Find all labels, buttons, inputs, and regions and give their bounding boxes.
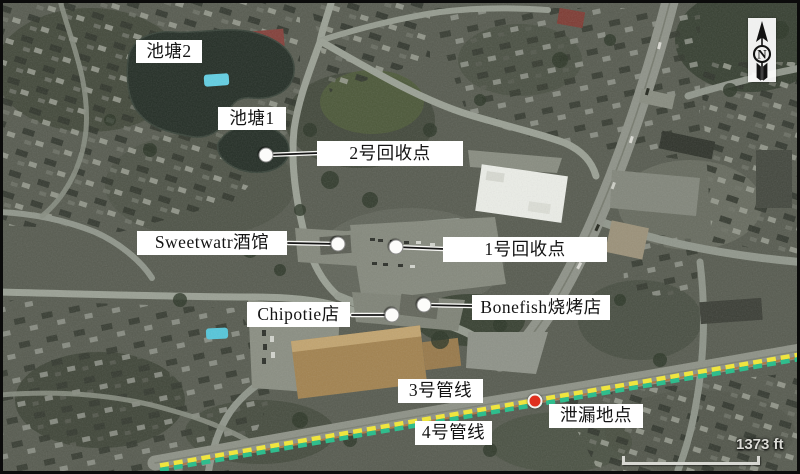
label-pond-2: 池塘2 (136, 40, 202, 63)
label-bonefish-grill: Bonefish烧烤店 (472, 295, 610, 320)
recovery-point-1-marker (389, 240, 404, 255)
leak-site-marker (528, 394, 543, 409)
label-chipotle-store: Chipotie店 (247, 302, 350, 327)
label-sweetwater-tavern: Sweetwatr酒馆 (137, 231, 287, 255)
chipotle-store-marker (385, 308, 400, 323)
sweetwater-tavern-marker (331, 237, 346, 252)
scale-distance: 1373 ft (736, 436, 784, 453)
recovery-point-2-marker (259, 148, 274, 163)
bonefish-grill-marker (417, 298, 432, 313)
north-arrow: N (748, 18, 776, 82)
label-pipeline-4: 4号管线 (415, 421, 492, 445)
label-pond-1: 池塘1 (218, 107, 286, 130)
north-letter: N (757, 47, 767, 62)
label-leak-site: 泄漏地点 (549, 404, 643, 428)
north-arrow-icon: N (748, 18, 776, 82)
label-recovery-point-1: 1号回收点 (443, 237, 607, 262)
label-pipeline-3: 3号管线 (398, 379, 483, 403)
scale-bar (622, 456, 760, 465)
label-recovery-point-2: 2号回收点 (317, 141, 463, 166)
map-figure: 池塘2 池塘1 2号回收点 Sweetwatr酒馆 1号回收点 Chipotie… (0, 0, 800, 474)
